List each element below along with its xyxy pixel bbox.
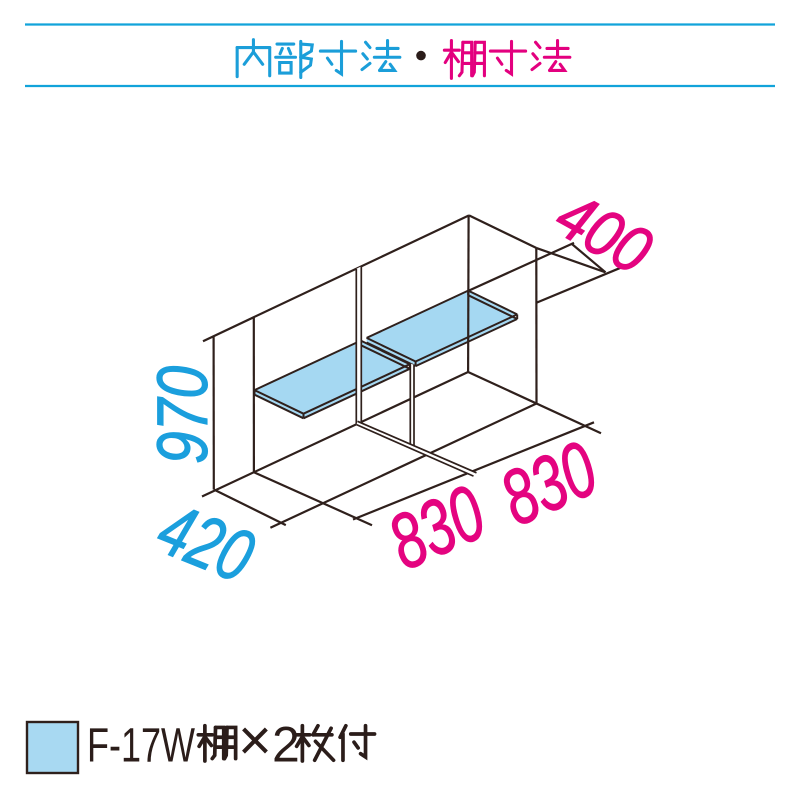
svg-text:F-17W: F-17W <box>87 720 196 773</box>
svg-text:970: 970 <box>143 366 222 464</box>
svg-text:×: × <box>238 708 272 773</box>
